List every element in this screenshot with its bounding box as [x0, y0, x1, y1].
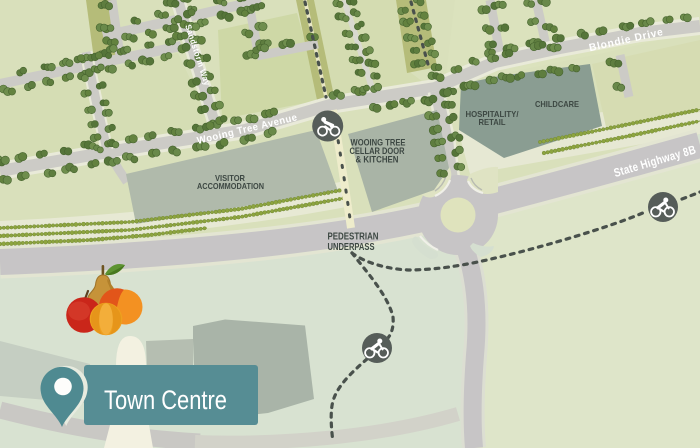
svg-text:CHILDCARE: CHILDCARE [535, 99, 579, 109]
svg-text:UNDERPASS: UNDERPASS [328, 242, 375, 253]
svg-text:RETAIL: RETAIL [479, 117, 506, 127]
svg-text:& KITCHEN: & KITCHEN [356, 155, 399, 165]
svg-text:ACCOMMODATION: ACCOMMODATION [197, 181, 264, 191]
svg-text:Town Centre: Town Centre [104, 385, 227, 415]
